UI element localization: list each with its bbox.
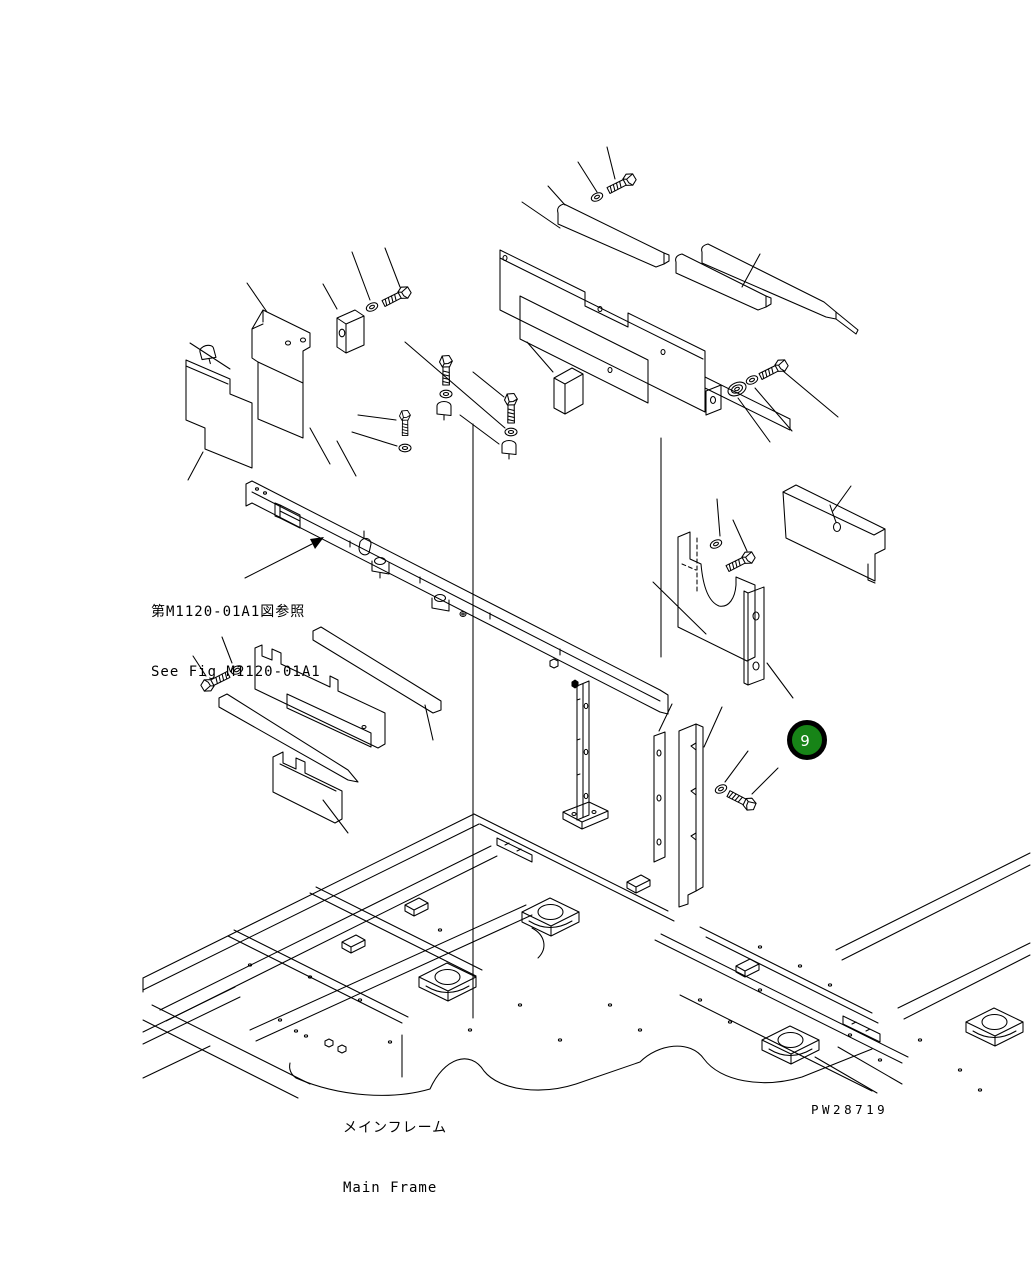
see-fig-label: 第M1120-01A1図参照 See Fig M1120-01A1 [151,562,321,702]
washer [709,538,723,550]
washer [505,428,517,436]
construction-lines [402,424,661,1077]
vertical-strips [654,724,703,907]
standoff-block [342,935,365,953]
fasteners [199,171,790,812]
washer [399,444,411,452]
mount-boss [522,898,579,936]
washer [745,374,759,386]
see-fig-label-jp: 第M1120-01A1図参照 [151,602,321,622]
standoff-block [627,875,650,893]
callout-number: 9 [800,732,810,750]
right-cover-plate [783,485,885,583]
nut-clip [437,402,451,421]
notched-plate [678,532,755,661]
washer [590,191,604,203]
bolt [505,394,518,424]
mount-boss [419,963,476,1001]
main-frame [143,814,1030,1098]
bolt [725,549,757,574]
bolt [381,284,413,309]
drawing-number: PW28719 [811,1102,888,1117]
top-cover-panel [500,250,790,430]
standoff-block [736,959,759,977]
main-frame-label-en: Main Frame [343,1178,447,1198]
bolt [758,357,790,382]
washer [714,783,728,795]
see-fig-label-en: See Fig M1120-01A1 [151,662,321,682]
support-post [563,680,608,829]
mount-boss [966,1008,1023,1046]
washer [440,390,452,398]
callout-badge-9[interactable]: 9 [790,723,825,758]
bolt [399,410,410,435]
diagram-canvas: 9 第M1120-01A1図参照 See Fig M1120-01A1 メインフ… [0,0,1031,1264]
nut-clip [502,441,516,460]
washer [365,301,379,313]
bolt [726,788,758,813]
left-bracket-panels [186,310,364,468]
side-bracket [744,587,764,685]
main-frame-label-jp: メインフレーム [343,1118,447,1138]
mount-boss [762,1026,819,1064]
main-frame-label: メインフレーム Main Frame [343,1078,447,1218]
bolt [606,171,638,196]
